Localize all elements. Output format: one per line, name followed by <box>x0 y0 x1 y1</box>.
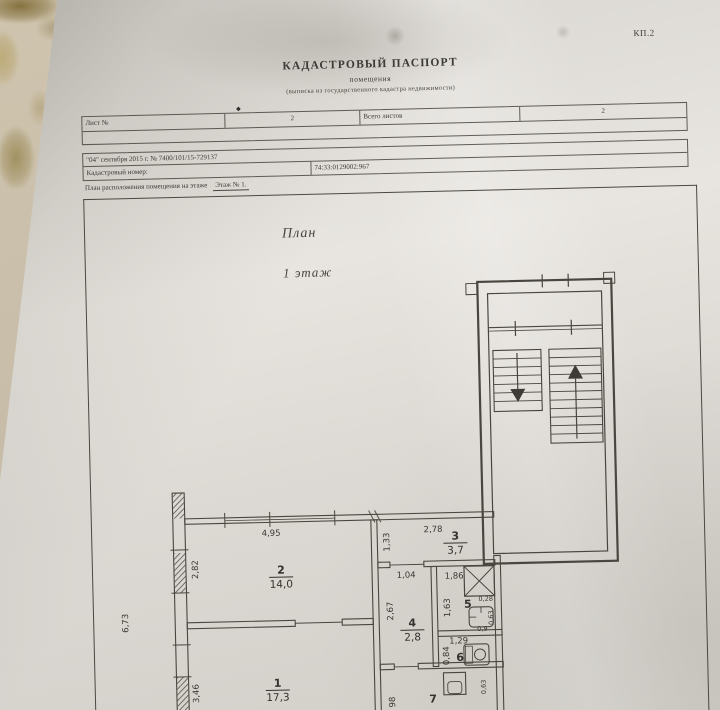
paper-sheet: КП.2 КАДАСТРОВЫЙ ПАСПОРТ помещения (выпи… <box>0 0 720 710</box>
room-number: 6 <box>456 652 464 664</box>
room-area: 3,7 <box>443 544 467 557</box>
dimension-label: 1,04 <box>397 570 416 580</box>
room-2-label: 214,0 <box>269 558 294 591</box>
room-4-label: 42,8 <box>400 611 425 644</box>
room-number: 2 <box>269 564 293 578</box>
room-number: 7 <box>429 693 437 705</box>
room-7-label: 7 <box>429 687 437 706</box>
dimension-label: 0,84 <box>442 646 452 665</box>
dimension-label: 4,95 <box>262 529 281 539</box>
dimension-label: 2,67 <box>386 601 396 620</box>
dimension-label: 1,33 <box>382 533 392 552</box>
room-number: 4 <box>400 617 424 631</box>
room-area: 2,8 <box>400 631 424 644</box>
dimension-label: 6,73 <box>121 614 131 633</box>
room-number: 1 <box>266 677 290 691</box>
room-area: 14,0 <box>269 578 293 591</box>
room-number: 5 <box>464 599 472 611</box>
plan-labels-layer: 117,3214,033,742,85674,952,826,733,461,3… <box>0 0 720 710</box>
room-5-label: 5 <box>464 593 472 612</box>
dimension-label: 0,63 <box>480 680 488 695</box>
room-3-label: 33,7 <box>443 524 468 557</box>
dimension-label: 2,78 <box>423 525 442 535</box>
dimension-label: 3,46 <box>192 684 202 703</box>
dimension-label: 0,63 <box>487 610 495 625</box>
room-number: 3 <box>443 530 467 544</box>
dimension-label: 1,29 <box>449 636 468 646</box>
room-area: 17,3 <box>266 691 290 704</box>
dimension-label: 0,9 <box>477 625 488 633</box>
document-content: КП.2 КАДАСТРОВЫЙ ПАСПОРТ помещения (выпи… <box>0 0 720 710</box>
dimension-label: 0,28 <box>478 595 493 603</box>
dimension-label: 1,63 <box>443 598 453 617</box>
room-6-label: 6 <box>456 646 464 665</box>
room-1-label: 117,3 <box>265 671 290 704</box>
dimension-label: 1,86 <box>445 571 464 581</box>
dimension-label: 98 <box>388 696 398 707</box>
dimension-label: 2,82 <box>191 560 201 579</box>
photo-scene: КП.2 КАДАСТРОВЫЙ ПАСПОРТ помещения (выпи… <box>0 0 720 710</box>
